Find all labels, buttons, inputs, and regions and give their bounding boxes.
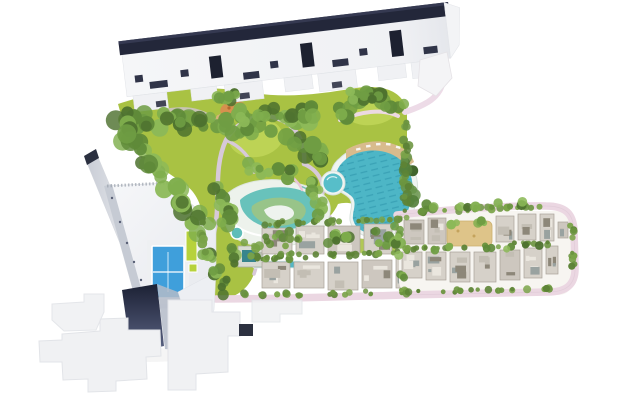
tree-canopy — [264, 168, 274, 178]
hedge-shrub — [441, 289, 446, 294]
facade-notch — [135, 75, 144, 83]
tree-canopy — [216, 217, 226, 227]
hedge-shrub — [301, 221, 306, 226]
site-plan-canvas — [0, 0, 620, 400]
hedge-shrub — [402, 170, 409, 177]
footprint-east — [168, 300, 240, 390]
hedge-shrub — [400, 161, 407, 168]
hedge-shrub — [200, 219, 206, 225]
skylight-dot — [119, 221, 121, 223]
tree-canopy — [168, 177, 186, 195]
tree-canopy — [194, 114, 207, 127]
tree-canopy — [309, 192, 318, 201]
play-equipment — [227, 106, 230, 109]
hedge-shrub — [568, 263, 575, 270]
villa-detail — [544, 230, 550, 239]
hedge-shrub — [403, 209, 407, 213]
townhouse-detail — [364, 275, 369, 281]
footprint-strip — [252, 300, 302, 322]
tree-canopy — [229, 252, 240, 263]
utility-block — [239, 324, 253, 336]
hedge-shrub — [485, 286, 493, 294]
tree-canopy — [323, 238, 333, 248]
tree-canopy — [335, 108, 347, 120]
hedge-shrub — [258, 292, 263, 297]
tree-canopy — [332, 236, 340, 244]
hedge-shrub — [268, 223, 272, 227]
villa-detail — [411, 237, 422, 240]
villa-detail — [553, 263, 556, 266]
hedge-shrub — [288, 250, 294, 256]
villa-roof — [426, 252, 446, 280]
hedge-shrub — [489, 205, 494, 210]
villa-detail — [485, 265, 490, 269]
hedge-shrub — [336, 218, 342, 224]
hedge-shrub — [468, 287, 474, 293]
skylight-dot — [111, 197, 113, 199]
hedge-shrub — [364, 217, 370, 223]
tree-canopy — [312, 152, 322, 162]
tree-canopy — [160, 112, 174, 126]
tree-canopy — [305, 108, 321, 124]
hedge-shrub — [298, 293, 303, 298]
tree-canopy — [175, 117, 186, 128]
townhouse-detail — [300, 270, 307, 278]
hedge-shrub — [274, 256, 279, 261]
hedge-shrub — [405, 288, 412, 295]
hedge-shrub — [379, 216, 385, 222]
villa-roof — [546, 246, 558, 274]
hedge-shrub — [454, 286, 461, 293]
hedge-shrub — [476, 287, 480, 291]
hedge-shrub — [303, 255, 309, 261]
hedge-shrub — [403, 123, 411, 131]
hedge-shrub — [356, 219, 361, 224]
hedge-shrub — [285, 290, 290, 295]
tree-canopy — [154, 171, 167, 184]
tree-canopy — [445, 243, 453, 251]
villa-detail — [457, 272, 466, 279]
tree-canopy — [348, 95, 358, 105]
hedge-shrub — [387, 217, 393, 223]
tree-canopy — [117, 124, 136, 143]
tree-canopy — [222, 276, 230, 284]
tree-canopy — [244, 166, 253, 175]
tree-canopy — [394, 233, 401, 240]
hedge-shrub — [404, 215, 410, 221]
hedge-shrub — [523, 285, 531, 293]
villa-detail — [527, 257, 536, 261]
hedge-shrub — [314, 217, 320, 223]
tree-canopy — [236, 112, 246, 122]
townhouse-detail — [303, 265, 320, 268]
villa-detail — [410, 223, 422, 229]
tree-canopy — [214, 92, 225, 103]
townhouse-detail — [299, 241, 315, 248]
hedge-shrub — [570, 227, 578, 235]
tree-canopy — [264, 124, 277, 137]
hedge-shrub — [537, 204, 543, 210]
tree-canopy — [493, 198, 502, 207]
townhouse-detail — [312, 233, 316, 237]
wing-notch — [156, 100, 167, 107]
villa-detail — [485, 257, 490, 264]
wing-notch — [239, 92, 250, 99]
master-plan-svg — [0, 0, 620, 400]
hedge-shrub — [366, 250, 372, 256]
tree-canopy — [341, 232, 352, 243]
tree-canopy — [522, 241, 529, 248]
unbuilt-footprints — [39, 294, 302, 392]
tree-canopy — [394, 251, 403, 260]
wing-notch — [332, 81, 343, 88]
tree-canopy — [368, 95, 377, 104]
tree-canopy — [287, 137, 302, 152]
tree-canopy — [304, 136, 322, 154]
hedge-shrub — [329, 252, 335, 258]
tree-canopy — [535, 241, 544, 250]
villa-detail — [430, 257, 441, 261]
tree-canopy — [267, 102, 280, 115]
villa-detail — [404, 261, 413, 269]
tree-canopy — [225, 125, 241, 141]
footprint-small — [52, 294, 104, 331]
tree-canopy — [317, 197, 327, 207]
townhouse-detail — [337, 245, 352, 251]
tree-canopy — [477, 216, 486, 225]
townhouse-detail — [384, 270, 391, 278]
hedge-shrub — [368, 292, 373, 297]
hedge-shrub — [264, 238, 271, 245]
hedge-shrub — [261, 221, 268, 228]
villa-detail — [457, 258, 467, 263]
tree-canopy — [483, 245, 491, 253]
courtyard-dot — [457, 230, 460, 233]
tree-canopy — [431, 246, 440, 255]
tree-canopy — [272, 162, 286, 176]
tree-canopy — [227, 243, 237, 253]
hedge-shrub — [351, 251, 359, 259]
hedge-shrub — [414, 245, 420, 251]
tree-canopy — [139, 155, 158, 174]
tree-canopy — [207, 182, 220, 195]
villa-detail — [548, 258, 551, 266]
hedge-shrub — [570, 251, 574, 255]
tree-canopy — [400, 274, 408, 282]
hedge-shrub — [199, 235, 208, 244]
hedge-shrub — [346, 251, 351, 256]
villa-detail — [506, 272, 515, 275]
hedge-shrub — [282, 243, 289, 250]
townhouse-detail — [373, 266, 387, 270]
townhouse-detail — [334, 267, 340, 274]
townhouse-detail — [264, 269, 280, 278]
tree-canopy — [375, 239, 383, 247]
villa-detail — [498, 227, 509, 235]
tree-canopy — [359, 91, 369, 101]
skylight-dot — [126, 242, 128, 244]
tree-canopy — [176, 196, 189, 209]
facade-notch — [270, 61, 279, 69]
tree-canopy — [399, 99, 409, 109]
villa-detail — [455, 266, 466, 272]
facade-notch — [359, 48, 368, 56]
hedge-shrub — [543, 285, 550, 292]
tree-canopy — [372, 227, 381, 236]
hedge-shrub — [442, 208, 447, 213]
hedge-shrub — [507, 203, 513, 209]
tree-canopy — [141, 121, 152, 132]
skylight-dot — [133, 261, 135, 263]
villa-detail — [530, 267, 539, 275]
tree-canopy — [223, 91, 234, 102]
hedge-shrub — [546, 240, 550, 244]
hedge-shrub — [286, 234, 295, 243]
tree-canopy — [218, 283, 226, 291]
villa-detail — [428, 269, 431, 272]
tree-canopy — [218, 289, 229, 300]
hedge-shrub — [275, 220, 282, 227]
hedge-shrub — [296, 251, 302, 257]
tree-canopy — [380, 101, 391, 112]
hedge-shrub — [416, 289, 420, 293]
hedge-shrub — [405, 183, 412, 190]
tree-canopy — [285, 108, 300, 123]
courtyard-dot — [473, 235, 476, 238]
villa-detail — [435, 227, 440, 233]
hedge-shrub — [255, 241, 264, 250]
hedge-shrub — [461, 245, 467, 251]
hedge-shrub — [402, 245, 409, 252]
lower-wing — [377, 64, 406, 81]
hedge-shrub — [294, 236, 300, 242]
hedge-shrub — [424, 246, 428, 250]
skylight-dot — [140, 279, 142, 281]
hedge-shrub — [274, 291, 280, 297]
villa-detail — [432, 267, 441, 276]
lower-wing — [284, 75, 313, 92]
sport-court-small — [189, 264, 197, 272]
hedge-shrub — [278, 251, 285, 258]
tree-canopy — [429, 202, 439, 212]
tree-canopy — [446, 220, 456, 230]
hedge-shrub — [330, 290, 336, 296]
facade-notch — [180, 69, 189, 77]
tree-canopy — [503, 245, 510, 252]
townhouse-detail — [335, 281, 344, 289]
tree-canopy — [518, 197, 528, 207]
tree-canopy — [254, 111, 264, 121]
hedge-shrub — [363, 289, 368, 294]
villa-detail — [560, 229, 564, 236]
villa-detail — [432, 235, 440, 241]
hedge-shrub — [241, 239, 249, 247]
villa-detail — [431, 220, 438, 228]
tree-canopy — [256, 165, 264, 173]
hedge-shrub — [499, 287, 505, 293]
hedge-shrub — [569, 235, 575, 241]
hedge-shrub — [374, 252, 379, 257]
hedge-shrub — [202, 248, 209, 255]
hedge-shrub — [510, 287, 515, 292]
hedge-shrub — [373, 218, 379, 224]
hedge-shrub — [247, 252, 254, 259]
tree-canopy — [470, 202, 481, 213]
hedge-shrub — [346, 289, 353, 296]
hedge-shrub — [241, 291, 249, 299]
villa-detail — [523, 227, 530, 235]
villa-detail — [543, 218, 550, 227]
hedge-shrub — [313, 251, 320, 258]
hedge-shrub — [328, 217, 334, 223]
hedge-shrub — [399, 288, 403, 292]
tree-canopy — [208, 266, 218, 276]
hedge-shrub — [496, 244, 501, 249]
tree-canopy — [285, 165, 296, 176]
hedge-shrub — [404, 147, 411, 154]
hedge-shrub — [264, 255, 270, 261]
hedge-shrub — [401, 194, 407, 200]
